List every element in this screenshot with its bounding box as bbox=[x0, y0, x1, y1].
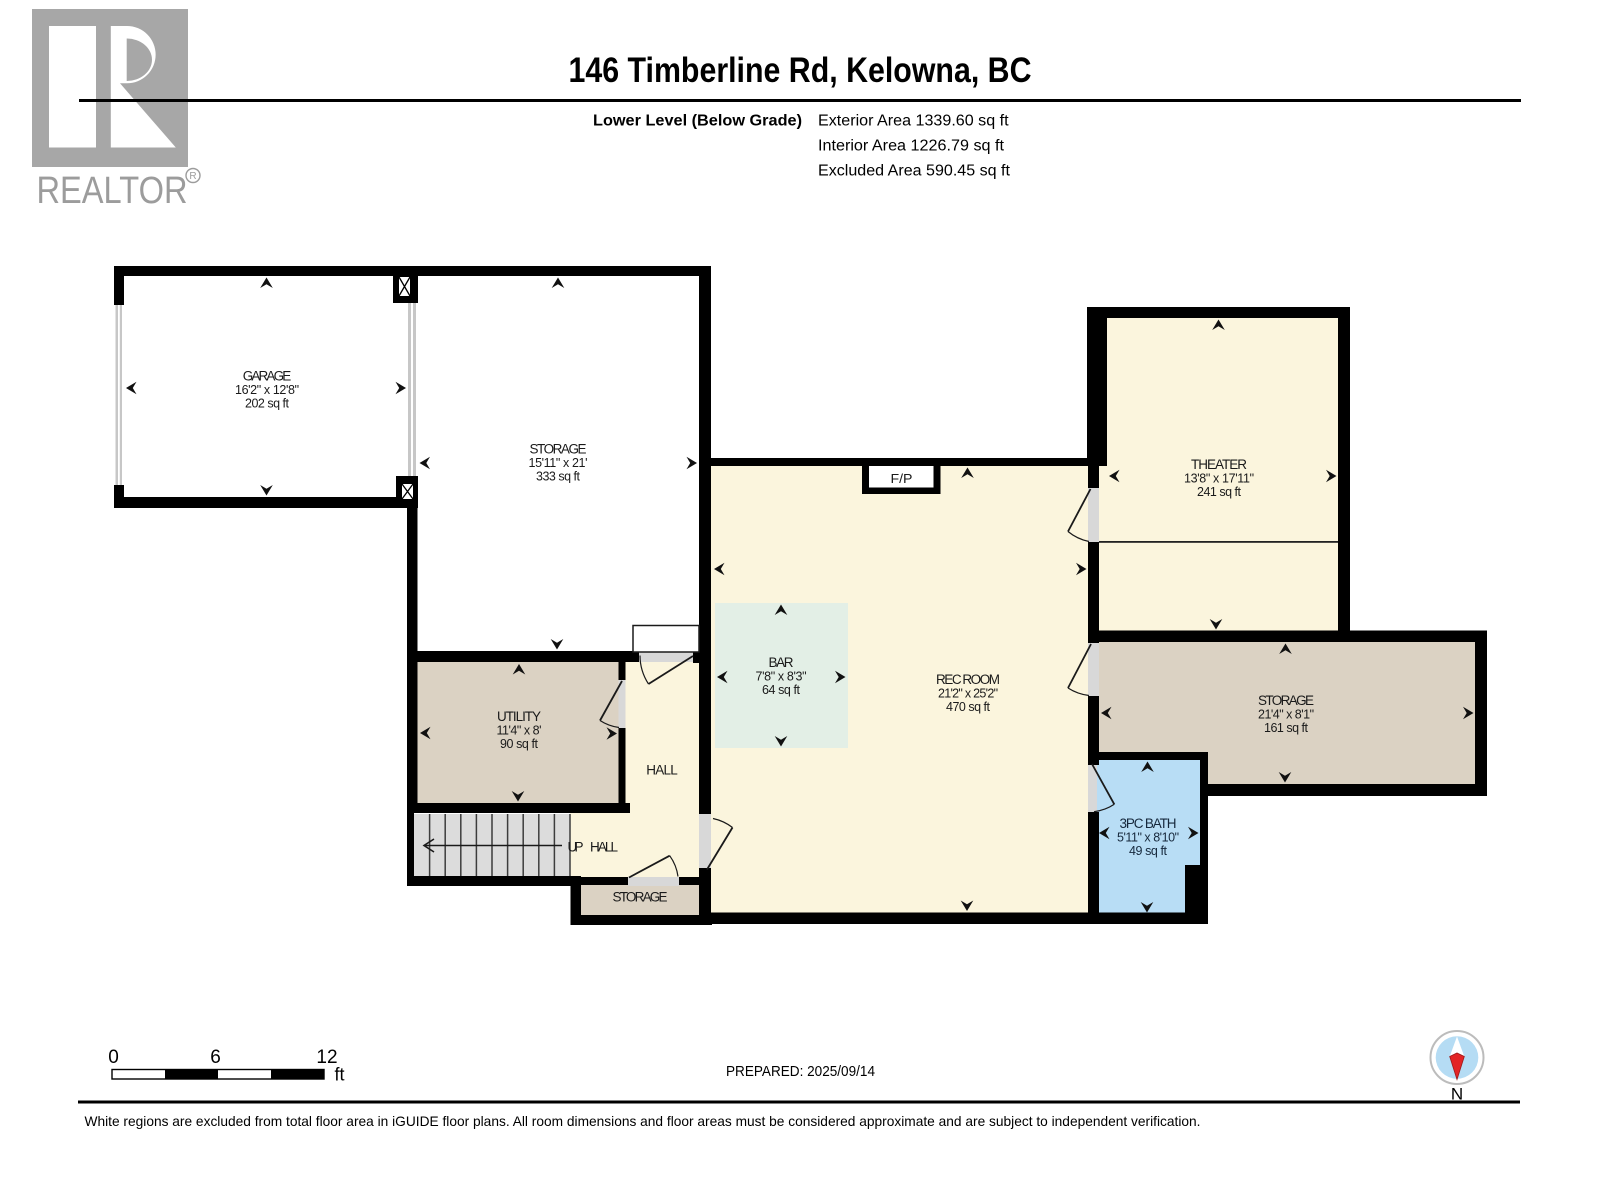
svg-text:STORAGE: STORAGE bbox=[530, 442, 587, 457]
svg-text:ft: ft bbox=[335, 1065, 345, 1085]
svg-text:21'2" x 25'2": 21'2" x 25'2" bbox=[938, 687, 998, 701]
svg-text:21'4" x 8'1": 21'4" x 8'1" bbox=[1258, 708, 1314, 722]
svg-text:6: 6 bbox=[210, 1047, 221, 1068]
svg-text:UP: UP bbox=[568, 840, 584, 855]
svg-text:Lower Level (Below Grade): Lower Level (Below Grade) bbox=[593, 113, 802, 130]
svg-text:15'11" x 21': 15'11" x 21' bbox=[529, 456, 588, 470]
svg-text:BAR: BAR bbox=[769, 655, 794, 670]
svg-text:7'8" x 8'3": 7'8" x 8'3" bbox=[756, 670, 807, 684]
svg-text:R: R bbox=[189, 171, 196, 182]
svg-text:GARAGE: GARAGE bbox=[243, 369, 292, 384]
svg-text:90 sq ft: 90 sq ft bbox=[500, 737, 539, 751]
svg-text:333 sq ft: 333 sq ft bbox=[536, 470, 581, 484]
svg-text:49 sq ft: 49 sq ft bbox=[1129, 844, 1168, 858]
svg-text:STORAGE: STORAGE bbox=[1258, 693, 1314, 708]
svg-text:STORAGE: STORAGE bbox=[613, 890, 668, 905]
svg-text:REALTOR: REALTOR bbox=[37, 170, 188, 212]
svg-text:HALL: HALL bbox=[590, 840, 618, 855]
svg-text:241 sq ft: 241 sq ft bbox=[1197, 485, 1242, 499]
svg-text:HALL: HALL bbox=[646, 763, 678, 778]
svg-text:Excluded Area 590.45 sq ft: Excluded Area 590.45 sq ft bbox=[818, 163, 1011, 180]
svg-text:16'2" x 12'8": 16'2" x 12'8" bbox=[235, 383, 299, 397]
svg-text:11'4" x 8': 11'4" x 8' bbox=[497, 724, 542, 738]
svg-text:White regions are excluded fro: White regions are excluded from total fl… bbox=[85, 1114, 1201, 1129]
svg-text:64 sq ft: 64 sq ft bbox=[762, 683, 801, 697]
svg-text:F/P: F/P bbox=[891, 471, 913, 486]
svg-text:Interior Area 1226.79 sq ft: Interior Area 1226.79 sq ft bbox=[818, 138, 1005, 155]
svg-text:0: 0 bbox=[108, 1047, 119, 1068]
svg-text:5'11" x 8'10": 5'11" x 8'10" bbox=[1117, 831, 1179, 845]
svg-text:13'8" x 17'11": 13'8" x 17'11" bbox=[1184, 472, 1254, 486]
svg-text:146 Timberline Rd, Kelowna, BC: 146 Timberline Rd, Kelowna, BC bbox=[569, 51, 1032, 90]
svg-text:REC ROOM: REC ROOM bbox=[936, 672, 1000, 687]
svg-text:THEATER: THEATER bbox=[1191, 457, 1247, 472]
svg-text:UTILITY: UTILITY bbox=[497, 709, 541, 724]
svg-text:470 sq ft: 470 sq ft bbox=[946, 700, 991, 714]
svg-text:202 sq ft: 202 sq ft bbox=[245, 397, 290, 411]
svg-text:3PC BATH: 3PC BATH bbox=[1120, 816, 1177, 831]
svg-text:Exterior Area 1339.60 sq ft: Exterior Area 1339.60 sq ft bbox=[818, 113, 1009, 130]
svg-text:PREPARED: 2025/09/14: PREPARED: 2025/09/14 bbox=[726, 1064, 875, 1080]
svg-text:161 sq ft: 161 sq ft bbox=[1264, 721, 1309, 735]
